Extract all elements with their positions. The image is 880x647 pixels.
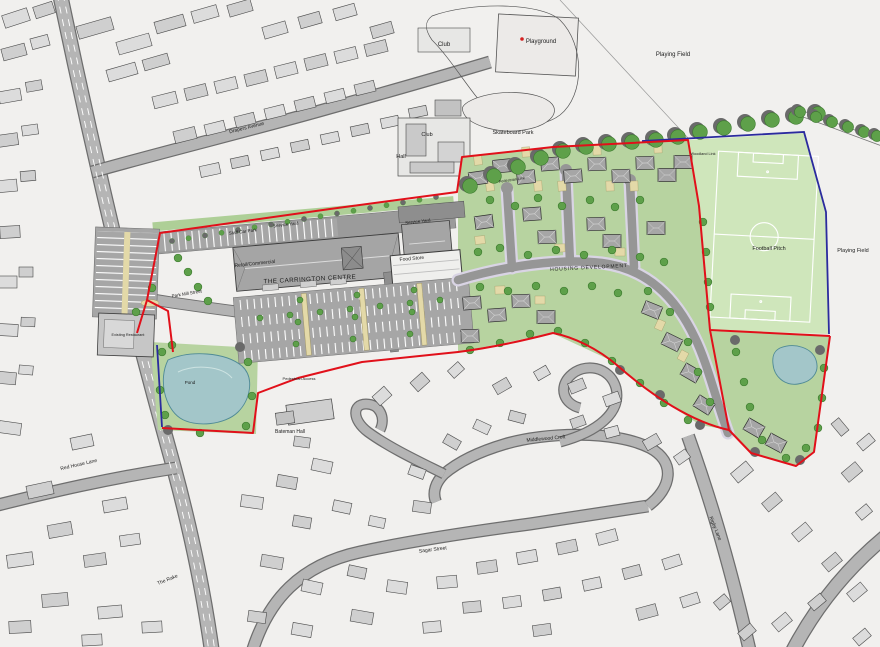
tree — [644, 287, 652, 295]
playground-area — [496, 14, 579, 76]
label-park-mill-street: Park Mill Street — [171, 288, 203, 298]
bush — [367, 205, 372, 210]
context-building — [370, 21, 394, 39]
label-red-house-lane: Red House Lane — [60, 458, 98, 472]
tree — [740, 378, 748, 386]
tree — [350, 336, 356, 342]
bush — [219, 230, 224, 235]
context-building — [841, 462, 863, 483]
context-building — [244, 70, 268, 87]
tree — [717, 121, 732, 136]
east-pond — [773, 346, 817, 385]
bush — [351, 208, 356, 213]
tree — [486, 196, 494, 204]
context-building — [227, 0, 253, 17]
tree — [741, 117, 756, 132]
context-building — [435, 100, 461, 116]
house-roof — [564, 169, 583, 183]
tree — [794, 106, 805, 117]
tree — [407, 300, 413, 306]
context-building — [199, 163, 221, 178]
tree-shadow — [163, 425, 173, 435]
tree — [660, 258, 668, 266]
context-building — [333, 3, 357, 21]
driveway-pad — [535, 296, 545, 304]
label-skateboard-park: Skateboard Park — [493, 130, 534, 136]
context-building — [831, 418, 849, 437]
tree — [580, 251, 588, 259]
context-building — [0, 371, 16, 385]
tree — [504, 287, 512, 295]
tree-shadow — [730, 335, 740, 345]
tree — [524, 251, 532, 259]
tree — [347, 306, 353, 312]
tree — [636, 253, 644, 261]
label-playing-field-top: Playing Field — [656, 52, 690, 58]
tree — [586, 196, 594, 204]
tree-shadow — [815, 345, 825, 355]
tree — [354, 292, 360, 298]
context-building — [82, 634, 103, 646]
label-bateman-hall: Bateman Hall — [275, 429, 305, 435]
tree — [871, 130, 880, 141]
house-roof — [612, 169, 630, 183]
bush — [334, 211, 339, 216]
house-roof — [538, 230, 556, 244]
context-building — [320, 131, 340, 145]
context-building — [386, 580, 407, 595]
site-plan-map: Club Playground Playing Field Playing Fi… — [0, 0, 880, 647]
label-woodland-link: Woodland Link — [690, 152, 715, 156]
context-building — [730, 461, 753, 483]
tree — [802, 444, 810, 452]
tree — [560, 287, 568, 295]
house-roof — [658, 169, 676, 182]
driveway-pad — [475, 235, 486, 244]
context-building — [762, 492, 783, 512]
context-building — [447, 362, 464, 379]
context-building — [0, 225, 20, 238]
context-building — [713, 594, 730, 611]
context-building — [154, 14, 186, 34]
context-building — [20, 170, 36, 181]
context-building — [596, 529, 618, 546]
tree — [558, 202, 566, 210]
context-building — [423, 621, 442, 634]
tree — [297, 297, 303, 303]
tree — [204, 297, 212, 305]
context-building — [350, 123, 370, 137]
context-building — [142, 53, 170, 71]
context-building — [680, 592, 701, 608]
house-roof — [588, 157, 606, 171]
tree — [526, 330, 534, 338]
context-building — [855, 504, 872, 521]
driveway-pad — [522, 147, 531, 158]
tree — [317, 309, 323, 315]
west-pond — [163, 354, 249, 424]
context-building — [30, 34, 50, 49]
context-building — [347, 565, 367, 580]
masterplan-canvas: Club Playground Playing Field Playing Fi… — [0, 0, 880, 647]
tree — [694, 368, 702, 376]
context-building — [533, 365, 550, 381]
context-building — [0, 88, 22, 104]
context-building — [293, 436, 310, 448]
tree — [588, 282, 596, 290]
context-building — [191, 5, 219, 24]
context-building — [822, 552, 843, 572]
context-building — [230, 155, 250, 169]
tree — [858, 126, 869, 137]
label-existing-restaurant: Existing Restaurant — [112, 333, 146, 337]
tree — [826, 116, 837, 127]
house-roof — [603, 235, 621, 248]
context-building — [582, 577, 602, 592]
house-roof — [636, 156, 654, 170]
bush — [301, 216, 306, 221]
context-building — [247, 610, 266, 623]
context-building — [792, 522, 813, 542]
context-building — [0, 179, 17, 193]
context-building — [0, 276, 17, 288]
context-building — [853, 628, 872, 646]
context-building — [41, 592, 68, 607]
label-pond: Pond — [185, 380, 196, 385]
tree — [174, 254, 182, 262]
bush — [384, 203, 389, 208]
tree — [608, 246, 616, 254]
tree — [810, 111, 821, 122]
context-building — [19, 365, 34, 375]
context-building — [260, 147, 280, 161]
tree — [765, 113, 780, 128]
label-football-pitch: Football Pitch — [752, 246, 785, 252]
tree — [534, 194, 542, 202]
context-building — [0, 323, 18, 336]
context-building — [350, 609, 374, 625]
label-playground: Playground — [526, 39, 556, 45]
context-building — [19, 267, 33, 277]
context-building — [292, 515, 312, 529]
context-building — [76, 17, 114, 39]
tree — [476, 283, 484, 291]
house-roof — [474, 214, 494, 229]
context-building — [298, 11, 322, 29]
context-building — [364, 40, 388, 57]
label-the-rake: The Rake — [156, 573, 179, 587]
context-building — [492, 377, 511, 395]
tree — [671, 130, 686, 145]
tree — [295, 319, 301, 325]
label-club-hall: Club — [421, 132, 432, 138]
tree — [257, 315, 263, 321]
context-building — [83, 553, 106, 568]
context-building — [380, 115, 400, 129]
context-building — [260, 554, 284, 570]
bush — [318, 214, 323, 219]
house-roof — [523, 207, 542, 221]
context-building — [542, 587, 562, 601]
context-building — [502, 595, 521, 608]
context-building — [274, 62, 298, 79]
context-building — [291, 622, 313, 637]
tree — [532, 282, 540, 290]
tree — [782, 454, 790, 462]
tree — [666, 308, 674, 316]
house-roof — [647, 222, 665, 235]
tree — [552, 246, 560, 254]
context-building — [262, 21, 288, 39]
club-hall-buildings — [398, 118, 470, 176]
context-building — [290, 139, 310, 153]
tree — [534, 151, 549, 166]
context-building — [463, 601, 482, 614]
tree — [158, 348, 166, 356]
tree — [636, 196, 644, 204]
house-roof — [461, 329, 479, 343]
tree — [244, 358, 252, 366]
context-building — [418, 28, 470, 52]
context-building — [214, 77, 238, 94]
tree-shadow — [235, 342, 245, 352]
bush — [400, 200, 405, 205]
tree — [132, 308, 140, 316]
tree — [411, 287, 417, 293]
context-building — [21, 124, 38, 136]
label-club-top: Club — [438, 42, 451, 48]
context-building — [152, 91, 178, 108]
house-roof — [587, 217, 605, 231]
tree — [614, 289, 622, 297]
tree — [511, 202, 519, 210]
house-roof — [463, 296, 482, 310]
tree — [352, 314, 358, 320]
tree — [611, 203, 619, 211]
context-building — [636, 604, 658, 621]
context-building — [102, 497, 128, 513]
context-building — [301, 579, 323, 595]
context-building — [47, 522, 73, 539]
tree — [437, 297, 443, 303]
context-building — [410, 372, 430, 392]
house-roof — [674, 156, 692, 169]
tree — [463, 179, 478, 194]
context-building — [70, 434, 94, 450]
house-roof — [488, 308, 507, 322]
tree — [409, 309, 415, 315]
tree — [579, 140, 594, 155]
bush — [202, 233, 207, 238]
tree — [684, 338, 692, 346]
context-building — [408, 105, 428, 119]
tree — [474, 248, 482, 256]
context-building — [2, 8, 31, 28]
context-building — [33, 1, 56, 19]
skateboard-park-track — [462, 92, 554, 131]
context-building — [311, 458, 333, 474]
context-building — [662, 554, 683, 570]
context-building — [240, 495, 263, 510]
label-pedestrian-access: Pedestrian Access — [283, 376, 316, 381]
tree — [732, 348, 740, 356]
context-building — [304, 54, 328, 71]
tree — [248, 392, 256, 400]
context-building — [1, 43, 27, 61]
context-building — [857, 433, 876, 451]
context-building — [473, 419, 492, 435]
bush — [169, 238, 174, 243]
tree — [758, 436, 766, 444]
tree — [746, 403, 754, 411]
driveway-pad — [630, 181, 638, 191]
context-building — [106, 62, 138, 82]
context-building — [98, 605, 123, 619]
context-building — [276, 474, 298, 489]
context-building — [532, 623, 551, 636]
playground-marker-icon — [520, 37, 524, 41]
context-building — [21, 317, 35, 327]
context-building — [119, 533, 140, 547]
tree — [407, 331, 413, 337]
context-building — [142, 621, 163, 633]
label-sagar-street: Sagar Street — [419, 545, 448, 554]
tree — [184, 268, 192, 276]
context-building — [476, 560, 497, 575]
context-building — [0, 133, 19, 148]
context-building — [622, 564, 642, 579]
label-playing-field-east: Playing Field — [837, 248, 869, 254]
tree — [842, 121, 853, 132]
context-building — [332, 500, 352, 515]
context-building — [847, 582, 868, 602]
tree — [377, 303, 383, 309]
tree — [287, 312, 293, 318]
driveway-pad — [495, 286, 505, 294]
context-building — [556, 539, 578, 555]
context-building — [25, 80, 42, 93]
context-building — [443, 434, 462, 451]
house-roof — [537, 311, 555, 324]
context-building — [412, 500, 431, 513]
bush — [186, 236, 191, 241]
context-building — [570, 415, 587, 429]
context-building — [6, 552, 34, 568]
tree — [706, 398, 714, 406]
driveway-pad — [615, 248, 625, 256]
tree — [511, 160, 526, 175]
context-building — [508, 410, 526, 424]
tree — [496, 244, 504, 252]
context-building — [9, 620, 32, 633]
tree — [242, 422, 250, 430]
context-building — [437, 575, 458, 589]
context-building — [0, 421, 22, 436]
context-building — [368, 515, 386, 528]
context-building — [772, 612, 793, 632]
context-building — [334, 47, 358, 64]
context-building — [116, 33, 152, 55]
house-roof — [512, 294, 530, 308]
label-hall: Hall — [396, 154, 405, 160]
context-building — [516, 549, 538, 564]
bateman-hall-building — [275, 399, 334, 425]
context-building — [184, 84, 208, 101]
tree — [293, 341, 299, 347]
